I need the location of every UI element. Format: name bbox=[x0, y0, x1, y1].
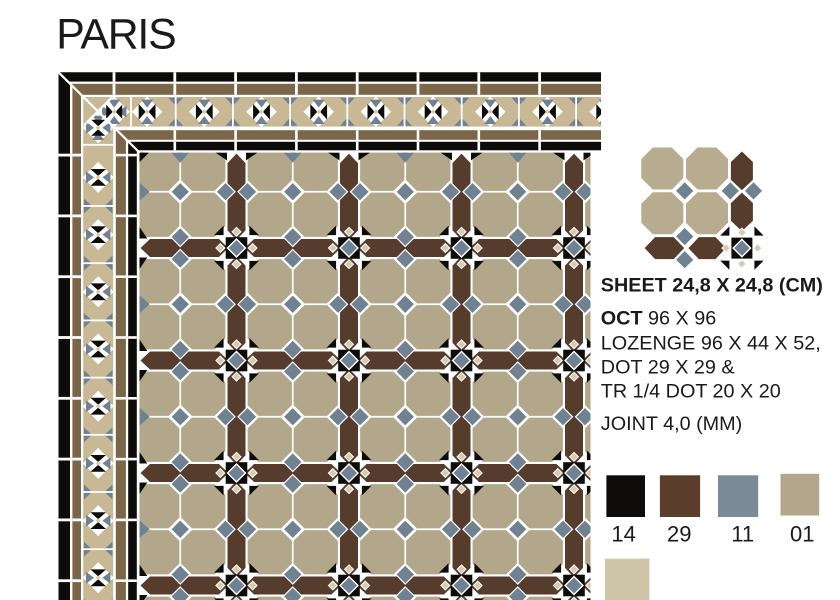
svg-text:PARIS: PARIS bbox=[56, 11, 175, 59]
svg-text:01: 01 bbox=[790, 522, 814, 547]
svg-text:SHEET 24,8 X 24,8 (CM): SHEET 24,8 X 24,8 (CM) bbox=[601, 275, 823, 297]
svg-text:DOT 29 X 29 &: DOT 29 X 29 & bbox=[601, 356, 735, 378]
svg-text:14: 14 bbox=[611, 522, 635, 547]
svg-text:TR 1/4 DOT 20 X 20: TR 1/4 DOT 20 X 20 bbox=[601, 380, 781, 402]
svg-text:OCT 96 X 96: OCT 96 X 96 bbox=[601, 308, 716, 330]
svg-text:29: 29 bbox=[667, 522, 691, 547]
svg-text:JOINT 4,0 (MM): JOINT 4,0 (MM) bbox=[601, 413, 742, 435]
svg-text:11: 11 bbox=[731, 522, 754, 547]
svg-text:LOZENGE 96 X 44 X 52,: LOZENGE 96 X 44 X 52, bbox=[601, 333, 821, 355]
